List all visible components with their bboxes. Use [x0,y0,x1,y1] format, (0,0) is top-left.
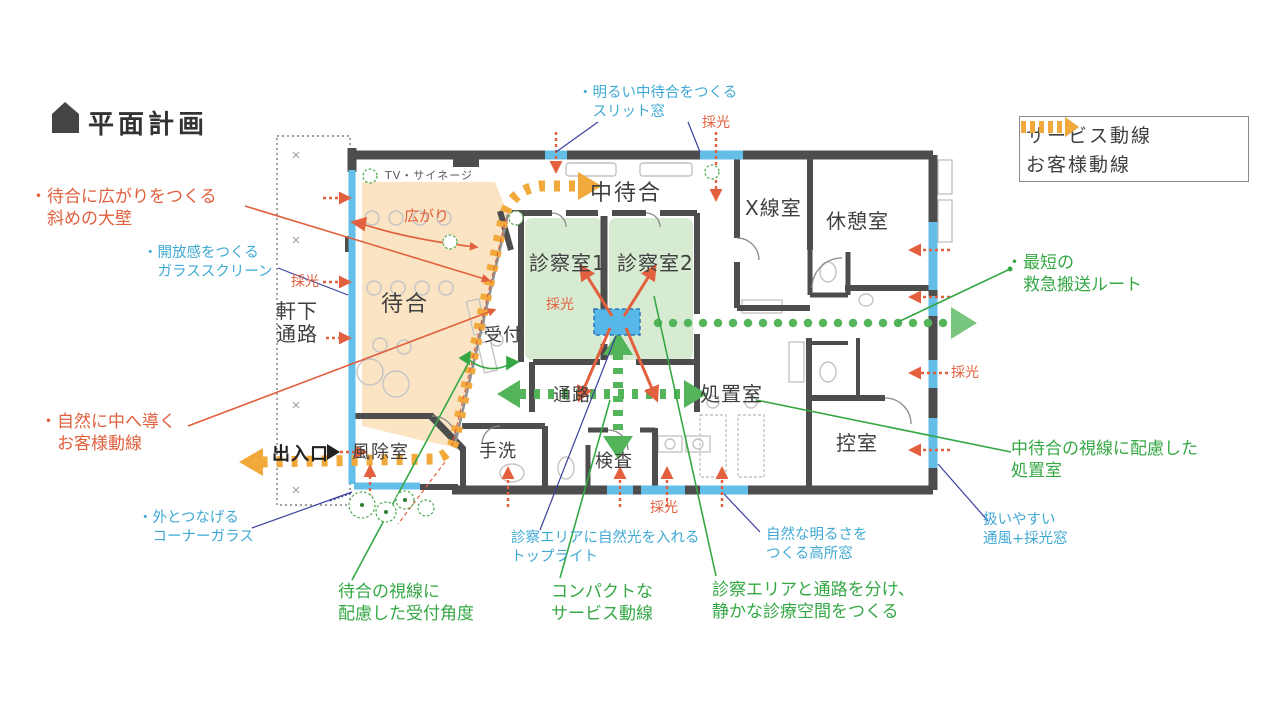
annotation-glass-screen: ・開放感をつくる ガラススクリーン [143,244,272,282]
room-label-naka-machiai: 中待合 [590,180,662,209]
annotation-treatment-room: 中待合の視線に配慮した 処置室 [1011,438,1198,482]
room-label-hikae: 控室 [836,430,878,456]
room-label-kyukei: 休憩室 [826,208,889,234]
flow-legend: サービス動線 お客様動線 [1019,116,1249,182]
room-label-xray: X線室 [745,195,802,221]
room-label-tearai: 手洗 [479,440,517,463]
room-label-tsuro: 通路 [553,384,591,407]
label-hirogari: 広がり [404,207,449,227]
annotation-quiet-area: 診察エリアと通路を分け、 静かな診療空間をつくる [712,579,915,623]
tv-panel [453,159,479,167]
daylight-label-right: 採光 [951,364,979,382]
room-label-kensa: 検査 [595,450,633,473]
annotation-reception-angle: 待合の視線に 配慮した受付角度 [338,581,474,625]
room-label-shinsatsu1: 診察室1 [529,250,606,276]
room-label-tv-signage: TV・サイネージ [385,169,473,183]
room-label-shinsatsu2: 診察室2 [617,250,694,276]
entrance-arrow-icon [327,444,340,460]
room-label-fujo: 風除室 [352,441,409,464]
legend-customer-label: お客様動線 [1026,150,1131,177]
floor-plan-page: 平面計画 サービス動線 お客様動線 ・明るい中待合をつくる スリット窓 採光 ・… [0,0,1280,720]
daylight-label-top: 採光 [702,114,730,132]
consult-room1-fill [525,218,602,360]
page-title: 平面計画 [88,104,208,141]
annotation-vent-window: 扱いやすい 通風+採光窓 [983,511,1068,549]
room-label-uketsuke: 受付 [484,324,522,347]
daylight-label-bottom: 採光 [650,499,678,517]
annotation-toplight: 診察エリアに自然光を入れる トップライト [511,529,700,567]
room-label-deiriguchi: 出入口 [272,443,329,466]
annotation-service-line: コンパクトな サービス動線 [551,581,653,625]
room-label-shochi: 処置室 [700,381,763,407]
annotation-high-window: 自然な明るさを つくる高所窓 [766,526,868,564]
room-label-machiai: 待合 [381,291,429,320]
annotation-customer-route: ・自然に中へ導く お客様動線 [40,411,176,455]
daylight-label-left: 採光 [291,273,319,291]
daylight-label-mid: 採光 [546,296,574,314]
annotation-emergency-route: ・最短の 救急搬送ルート [1006,252,1142,296]
room-label-nokishita: 軒下 通路 [276,300,318,346]
house-icon [52,102,79,133]
legend-customer-row: お客様動線 [1026,150,1242,177]
annotation-diagonal-wall: ・待合に広がりをつくる 斜めの大壁 [30,186,217,230]
customer-flow-arrow-icon [1020,117,1080,137]
annotation-corner-glass: ・外とつなげる コーナーガラス [138,509,254,547]
